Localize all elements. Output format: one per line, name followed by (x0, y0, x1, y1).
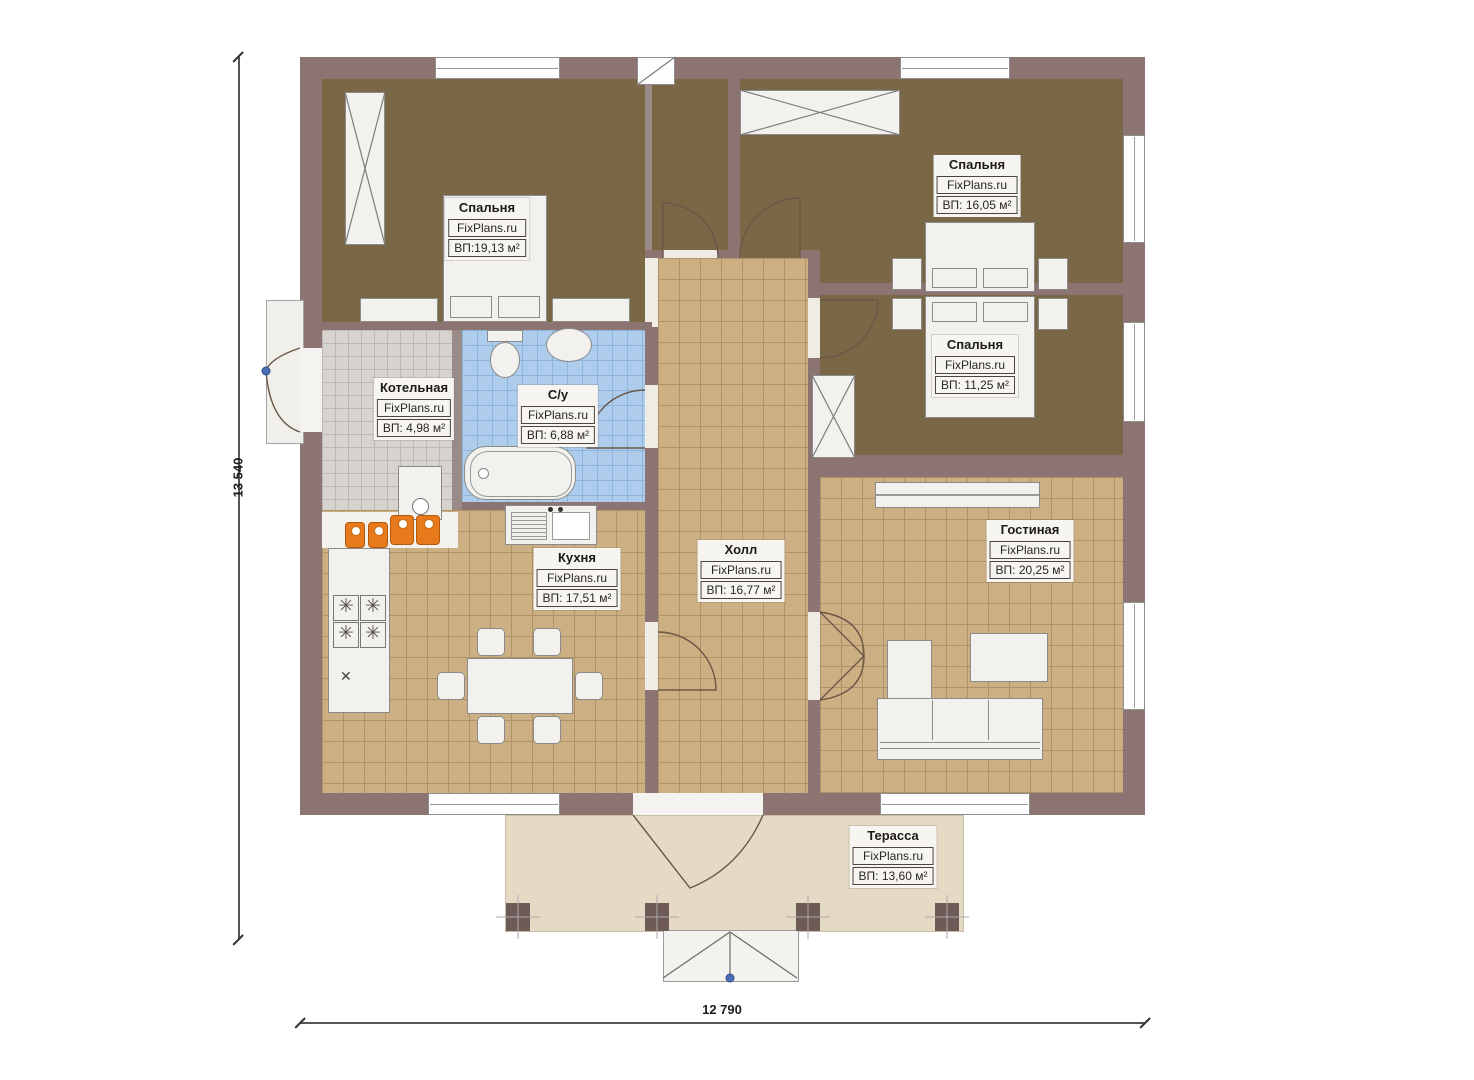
room-name: Кухня (537, 550, 618, 567)
room-label-kitchen: Кухня FixPlans.ru ВП: 17,51 м² (534, 548, 621, 610)
dressing-nook-floor (652, 79, 728, 250)
nightstand (1038, 298, 1068, 330)
wall (645, 79, 652, 250)
toilet (487, 330, 523, 342)
sofa-base-line (880, 742, 1040, 743)
pillow (983, 268, 1028, 288)
pillow (983, 302, 1028, 322)
dimension-height-label: 13 540 (231, 448, 246, 508)
room-hall-floor (658, 258, 808, 793)
nightstand (360, 298, 438, 322)
chimney-vent (637, 57, 675, 85)
room-name: Котельная (377, 380, 451, 397)
pillow (932, 268, 977, 288)
sink-basin (552, 512, 590, 540)
room-label-bedroom-3: Спальня FixPlans.ru ВП: 11,25 м² (932, 335, 1018, 397)
side-door-opening (300, 348, 322, 432)
faucet-dot (548, 507, 553, 512)
chair (477, 628, 505, 656)
wardrobe (740, 90, 900, 135)
stove-burner: ✳ (360, 595, 386, 621)
wall (645, 250, 663, 258)
wall (322, 322, 652, 330)
window (435, 57, 560, 79)
faucet-dot (558, 507, 563, 512)
nightstand (892, 298, 922, 330)
wall (808, 455, 1123, 477)
terrace-post (645, 903, 669, 931)
bathtub-drain (478, 468, 489, 479)
wall (808, 700, 820, 793)
room-area: ВП: 11,25 м² (935, 376, 1015, 394)
room-area: ВП: 4,98 м² (377, 419, 451, 437)
room-label-hall: Холл FixPlans.ru ВП: 16,77 м² (698, 540, 785, 602)
wall (718, 250, 740, 258)
nightstand (892, 258, 922, 290)
toilet-bowl (490, 342, 520, 378)
room-name: Терасса (853, 828, 934, 845)
wall (808, 250, 820, 298)
gas-cylinder (368, 522, 388, 548)
window (880, 793, 1030, 815)
chair (533, 628, 561, 656)
room-name: Гостиная (990, 522, 1071, 539)
chair (437, 672, 465, 700)
gas-cylinder (390, 515, 414, 545)
room-name: Спальня (448, 200, 526, 217)
chair (575, 672, 603, 700)
room-name: Спальня (935, 337, 1015, 354)
entrance-door-opening (633, 793, 763, 815)
wall (728, 79, 740, 250)
room-brand: FixPlans.ru (935, 356, 1015, 374)
room-name: С/у (521, 387, 595, 404)
dimension-line-horizontal (300, 1022, 1145, 1024)
pillow (932, 302, 977, 322)
wardrobe (812, 375, 855, 458)
chair (533, 716, 561, 744)
nightstand (1038, 258, 1068, 290)
sofa-cushion-line (988, 700, 989, 740)
wall (645, 690, 658, 793)
floor-plan-canvas: 13 540 12 790 (0, 0, 1474, 1080)
entrance-steps (663, 930, 799, 982)
counter-x-mark: ✕ (340, 668, 352, 685)
sink (546, 328, 592, 362)
gas-cylinder (345, 522, 365, 548)
room-brand: FixPlans.ru (537, 569, 618, 587)
sink-drainer (511, 512, 547, 540)
wall (645, 448, 658, 622)
stove-burner: ✳ (360, 622, 386, 648)
window (428, 793, 560, 815)
terrace-post (935, 903, 959, 931)
room-area: ВП: 6,88 м² (521, 426, 595, 444)
room-area: ВП: 16,05 м² (937, 196, 1018, 214)
side-porch-steps (266, 300, 304, 444)
room-brand: FixPlans.ru (990, 541, 1071, 559)
pillow (450, 296, 492, 318)
room-name: Холл (701, 542, 782, 559)
room-area: ВП:19,13 м² (448, 239, 526, 257)
room-brand: FixPlans.ru (521, 406, 595, 424)
room-label-boiler: Котельная FixPlans.ru ВП: 4,98 м² (374, 378, 454, 440)
dining-table (467, 658, 573, 714)
room-label-living: Гостиная FixPlans.ru ВП: 20,25 м² (987, 520, 1074, 582)
nightstand (552, 298, 630, 322)
gas-cylinder (416, 515, 440, 545)
window (1123, 322, 1145, 422)
room-area: ВП: 16,77 м² (701, 581, 782, 599)
chair (477, 716, 505, 744)
room-brand: FixPlans.ru (937, 176, 1018, 194)
wall (645, 327, 658, 385)
room-name: Спальня (937, 157, 1018, 174)
pillow (498, 296, 540, 318)
room-label-bathroom: С/у FixPlans.ru ВП: 6,88 м² (518, 385, 598, 447)
room-label-bedroom-1: Спальня FixPlans.ru ВП:19,13 м² (445, 198, 529, 260)
room-label-terrace: Терасса FixPlans.ru ВП: 13,60 м² (850, 826, 937, 888)
room-brand: FixPlans.ru (377, 399, 451, 417)
window (1123, 135, 1145, 243)
stove-burner: ✳ (333, 595, 359, 621)
sofa-cushion-line (932, 700, 933, 740)
room-area: ВП: 13,60 м² (853, 867, 934, 885)
stove-burner: ✳ (333, 622, 359, 648)
room-label-bedroom-2: Спальня FixPlans.ru ВП: 16,05 м² (934, 155, 1021, 217)
terrace-post (506, 903, 530, 931)
room-area: ВП: 17,51 м² (537, 589, 618, 607)
room-brand: FixPlans.ru (701, 561, 782, 579)
terrace-post (796, 903, 820, 931)
room-area: ВП: 20,25 м² (990, 561, 1071, 579)
window (900, 57, 1010, 79)
dimension-width-label: 12 790 (692, 1002, 752, 1017)
wardrobe (345, 92, 385, 245)
coffee-table (970, 633, 1048, 682)
sofa (877, 698, 1043, 760)
sofa-base-line (880, 748, 1040, 749)
room-brand: FixPlans.ru (853, 847, 934, 865)
room-brand: FixPlans.ru (448, 219, 526, 237)
tv-stand (875, 482, 1040, 508)
boiler-dial (412, 498, 429, 515)
window (1123, 602, 1145, 710)
